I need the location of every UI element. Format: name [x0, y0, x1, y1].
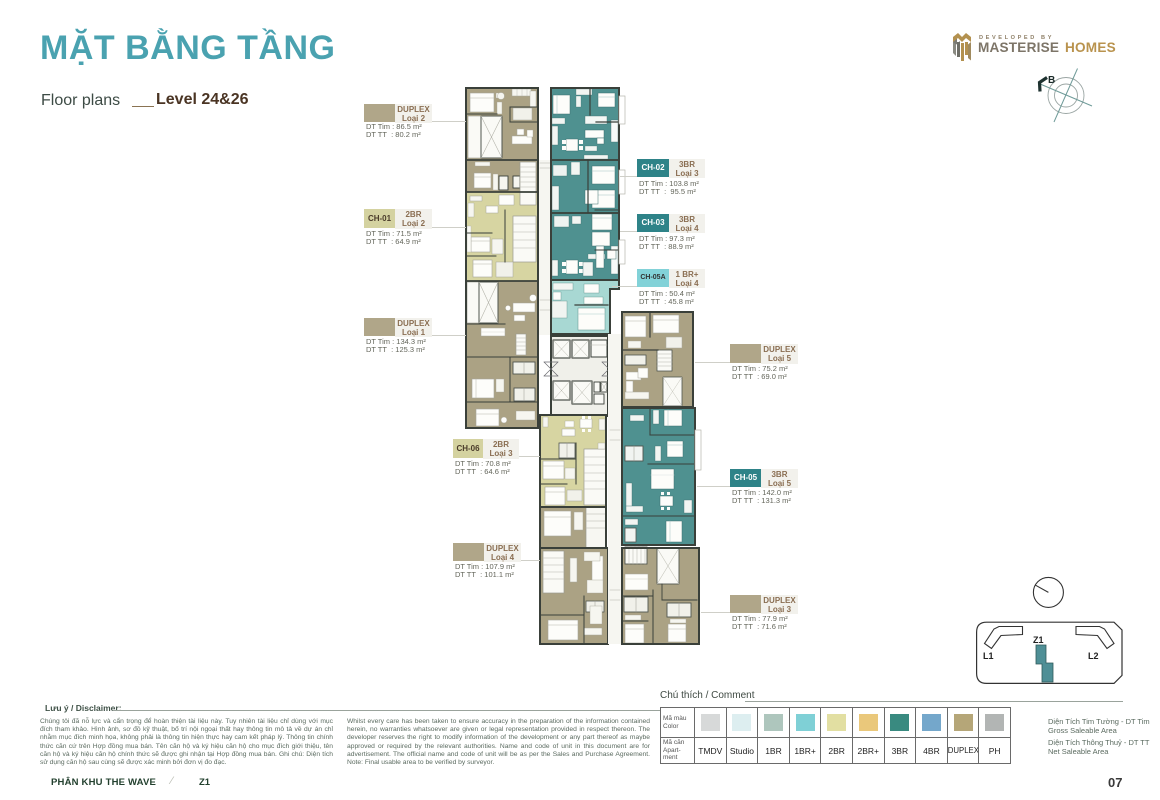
svg-text:MASTERISE: MASTERISE [978, 40, 1059, 55]
svg-text:HOMES: HOMES [1065, 40, 1116, 55]
svg-text:L1: L1 [983, 651, 994, 661]
svg-text:B: B [1048, 75, 1055, 86]
svg-text:Z1: Z1 [1033, 635, 1044, 645]
svg-text:L2: L2 [1088, 651, 1099, 661]
